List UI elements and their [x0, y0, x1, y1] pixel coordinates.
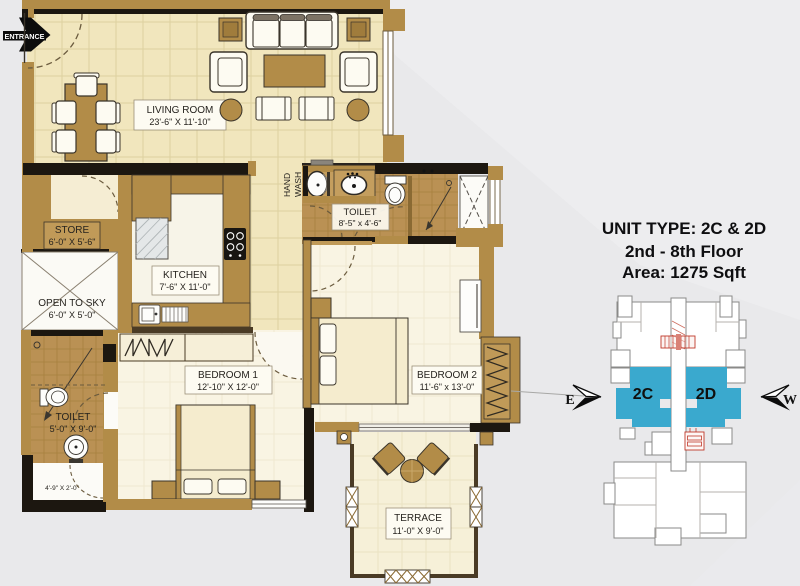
svg-text:4'-9" X 2'-0": 4'-9" X 2'-0" — [45, 485, 80, 492]
svg-text:11'-0" X 9'-0": 11'-0" X 9'-0" — [392, 526, 443, 536]
svg-text:11'-6" x 13'-0": 11'-6" x 13'-0" — [420, 382, 475, 392]
svg-text:6'-0" X 5'-6": 6'-0" X 5'-6" — [49, 237, 96, 247]
svg-text:LIVING ROOM: LIVING ROOM — [147, 105, 214, 116]
svg-text:HAND: HAND — [282, 173, 292, 197]
svg-text:STORE: STORE — [55, 225, 90, 236]
svg-text:Area: 1275 Sqft: Area: 1275 Sqft — [622, 263, 746, 282]
svg-text:E: E — [565, 393, 574, 408]
svg-text:TOILET: TOILET — [343, 207, 376, 218]
svg-text:BEDROOM 2: BEDROOM 2 — [417, 370, 477, 381]
svg-text:KITCHEN: KITCHEN — [163, 270, 207, 281]
svg-text:TOILET: TOILET — [56, 412, 91, 423]
svg-text:6'-0" X 5'-0": 6'-0" X 5'-0" — [49, 310, 96, 320]
svg-text:12'-10" X 12'-0": 12'-10" X 12'-0" — [197, 382, 259, 392]
svg-text:BEDROOM 1: BEDROOM 1 — [198, 370, 258, 381]
svg-text:7'-6" X 11'-0": 7'-6" X 11'-0" — [159, 282, 210, 292]
svg-text:UNIT TYPE: 2C & 2D: UNIT TYPE: 2C & 2D — [602, 219, 766, 238]
svg-text:2C: 2C — [633, 386, 654, 403]
svg-text:5'-0" X 9'-0": 5'-0" X 9'-0" — [50, 424, 97, 434]
svg-text:W: W — [783, 393, 797, 408]
svg-text:OPEN TO SKY: OPEN TO SKY — [38, 298, 106, 309]
svg-text:TERRACE: TERRACE — [394, 513, 442, 524]
svg-text:WASH: WASH — [293, 172, 303, 197]
svg-text:2nd - 8th Floor: 2nd - 8th Floor — [625, 242, 743, 261]
svg-text:2D: 2D — [696, 386, 716, 403]
svg-text:8'-5" x 4'-6": 8'-5" x 4'-6" — [339, 218, 382, 228]
svg-text:23'-6" X 11'-10": 23'-6" X 11'-10" — [149, 117, 210, 127]
